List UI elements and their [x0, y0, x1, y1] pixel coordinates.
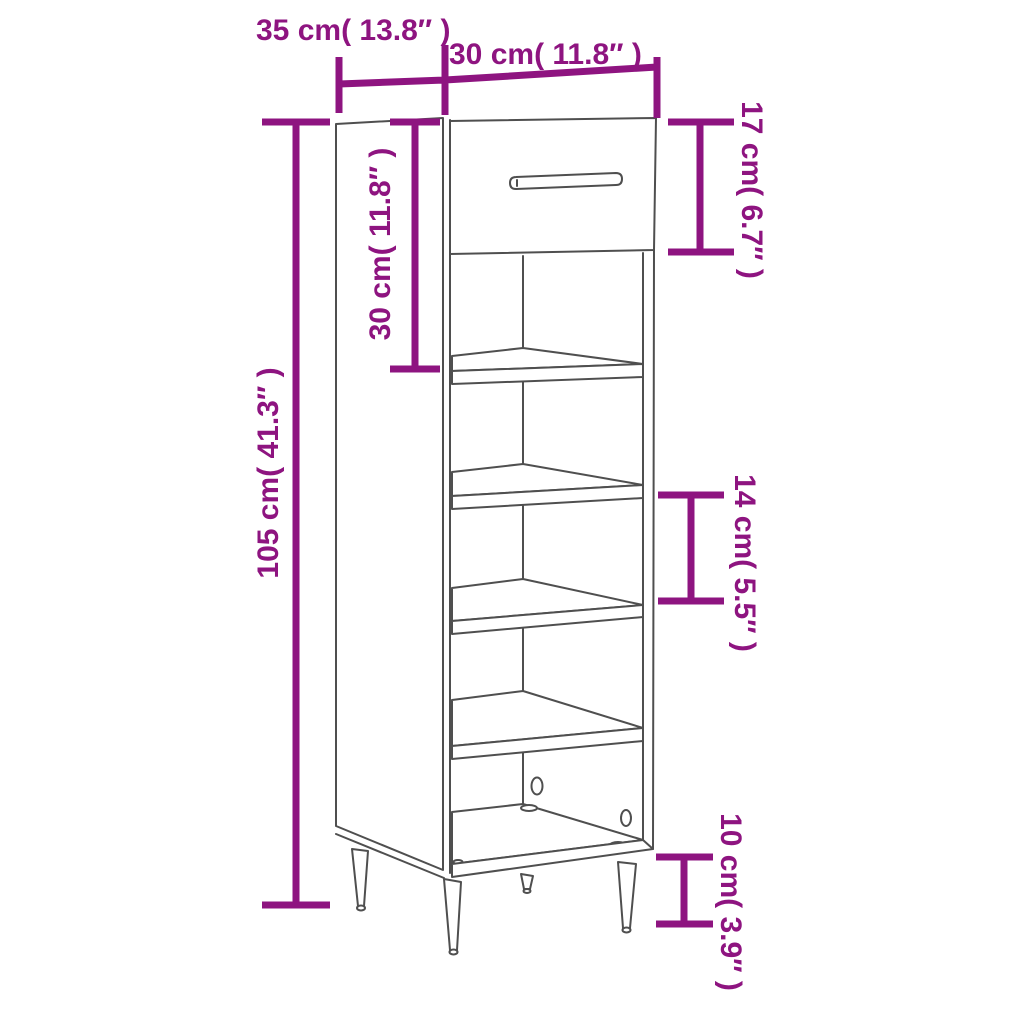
dimension-label-drawer-front-height: 17 cm( 6.7″ ) [732, 40, 770, 340]
cabinet-diagram [0, 0, 1024, 1024]
back-wall-screw-hole [532, 778, 543, 795]
dimension-label-leg-height: 10 cm( 3.9″ ) [711, 752, 749, 1024]
dimension-label-upper-section-height: 30 cm( 11.8″ ) [362, 94, 400, 394]
right-wall-screw-hole [621, 810, 631, 826]
shelf-2 [452, 464, 643, 509]
dimension-line-drawer-front [668, 122, 734, 252]
right-wall-outer-edge [653, 250, 654, 849]
dimension-line-leg-height [656, 857, 713, 924]
shelf-3 [452, 579, 643, 634]
leg-front-center [444, 879, 461, 955]
bottom-panel-hole-back [521, 805, 537, 811]
dimension-label-total-height: 105 cm( 41.3″ ) [250, 323, 288, 623]
drawer-front [450, 118, 656, 254]
shelf-1 [452, 348, 643, 384]
dimension-diagram-page: 35 cm( 13.8″ ) 30 cm( 11.8″ ) 30 cm( 11.… [0, 0, 1024, 1024]
leg-back-center [521, 874, 533, 893]
dimension-label-depth: 35 cm( 13.8″ ) [256, 12, 450, 50]
dimension-line-shelf-spacing [658, 495, 724, 601]
dimension-label-shelf-spacing: 14 cm( 5.5″ ) [725, 413, 763, 713]
shelf-4 [452, 691, 643, 759]
leg-front-left [352, 849, 368, 911]
leg-right [618, 862, 636, 933]
dimension-label-width: 30 cm( 11.8″ ) [449, 36, 642, 74]
